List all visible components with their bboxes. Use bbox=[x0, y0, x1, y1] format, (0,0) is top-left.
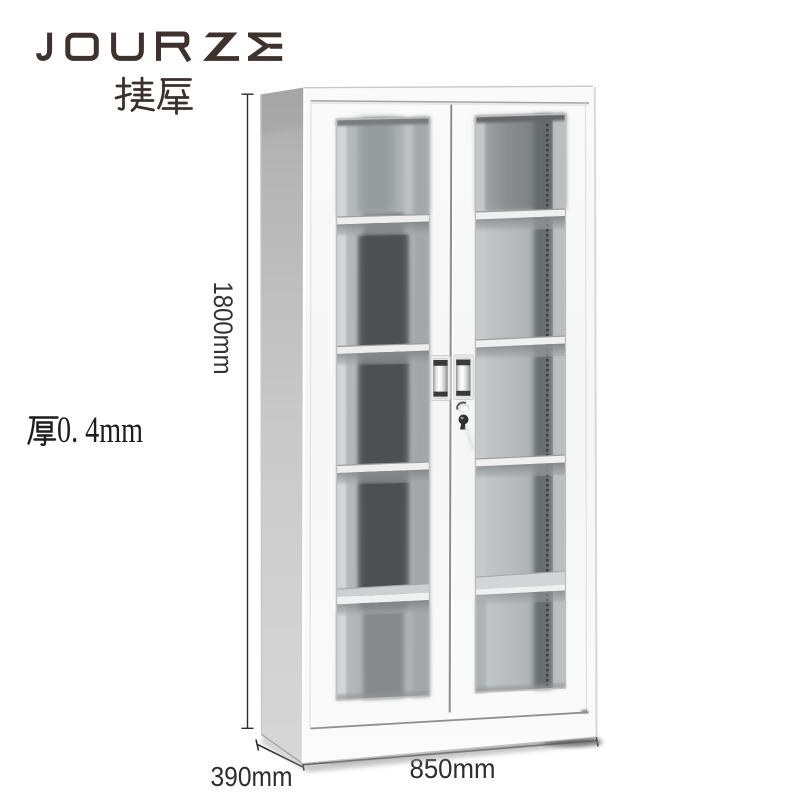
svg-text:390mm: 390mm bbox=[211, 761, 293, 792]
svg-text:1800mm: 1800mm bbox=[208, 282, 238, 375]
svg-text:0. 4mm: 0. 4mm bbox=[57, 410, 143, 451]
